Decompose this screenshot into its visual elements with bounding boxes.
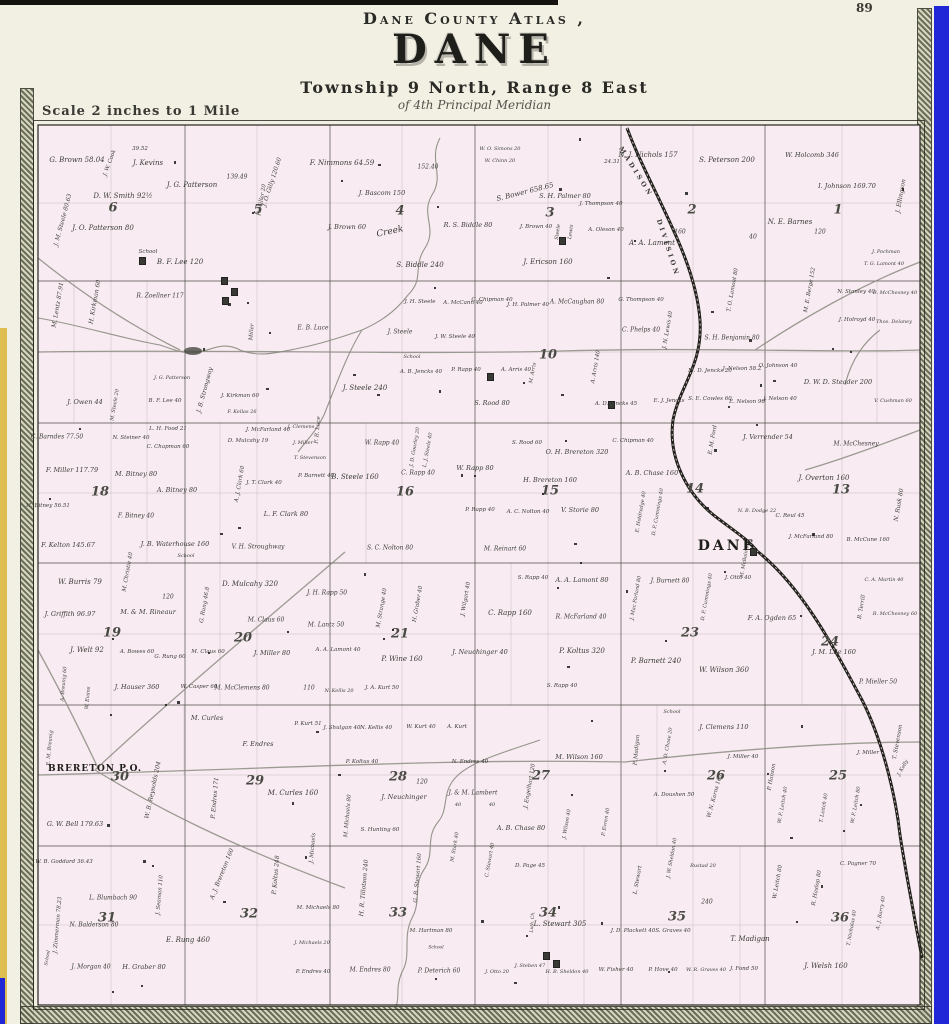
map-ground <box>38 125 920 1005</box>
atlas-page: { "page": { "number": "89" }, "header": … <box>0 0 949 1024</box>
pond <box>184 347 202 355</box>
plat-map <box>0 0 949 1024</box>
